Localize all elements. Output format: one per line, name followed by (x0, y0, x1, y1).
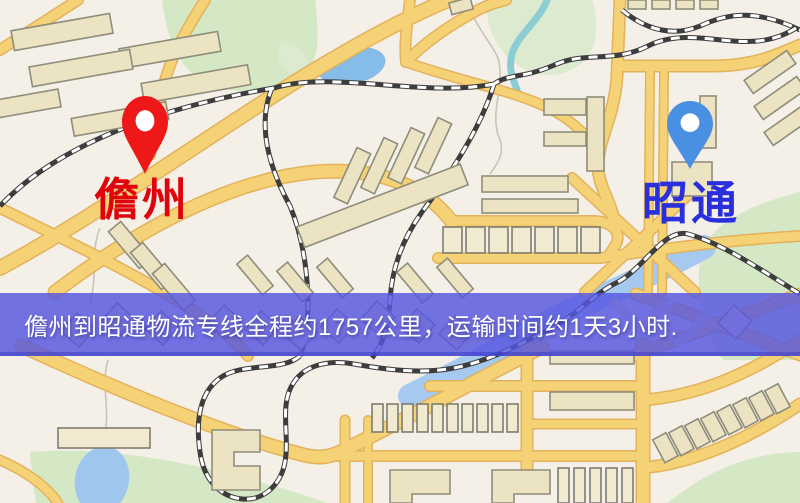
route-banner-text: 儋州到昭通物流专线全程约1757公里，运输时间约1天3小时. (0, 307, 678, 342)
map-canvas (0, 0, 800, 503)
route-banner: 儋州到昭通物流专线全程约1757公里，运输时间约1天3小时. (0, 293, 800, 356)
destination-pin-icon[interactable] (667, 101, 713, 169)
origin-pin-icon[interactable] (122, 96, 168, 174)
destination-label: 昭通 (642, 181, 740, 227)
origin-label: 儋州 (94, 178, 190, 223)
map-viewport[interactable]: 儋州到昭通物流专线全程约1757公里，运输时间约1天3小时. 儋州 昭通 (0, 0, 800, 503)
